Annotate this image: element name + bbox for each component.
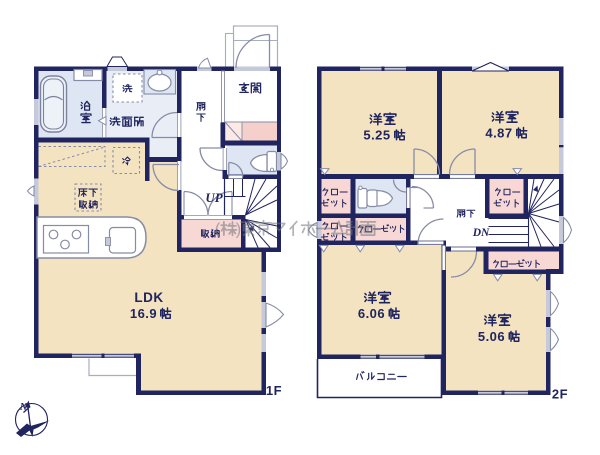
svg-text:1F: 1F [266, 383, 282, 398]
svg-text:5.06: 5.06 [478, 329, 505, 344]
svg-text:N: N [19, 402, 28, 413]
svg-text:6.06: 6.06 [358, 306, 385, 321]
svg-text:(: ( [215, 220, 221, 239]
svg-text:DN: DN [472, 227, 490, 239]
svg-text:4.87: 4.87 [485, 126, 512, 141]
svg-text:5.25: 5.25 [363, 128, 390, 143]
svg-text:UP: UP [205, 190, 223, 205]
svg-text:2F: 2F [552, 387, 568, 402]
svg-text:LDK: LDK [134, 290, 163, 305]
svg-text:16.9: 16.9 [130, 306, 157, 321]
